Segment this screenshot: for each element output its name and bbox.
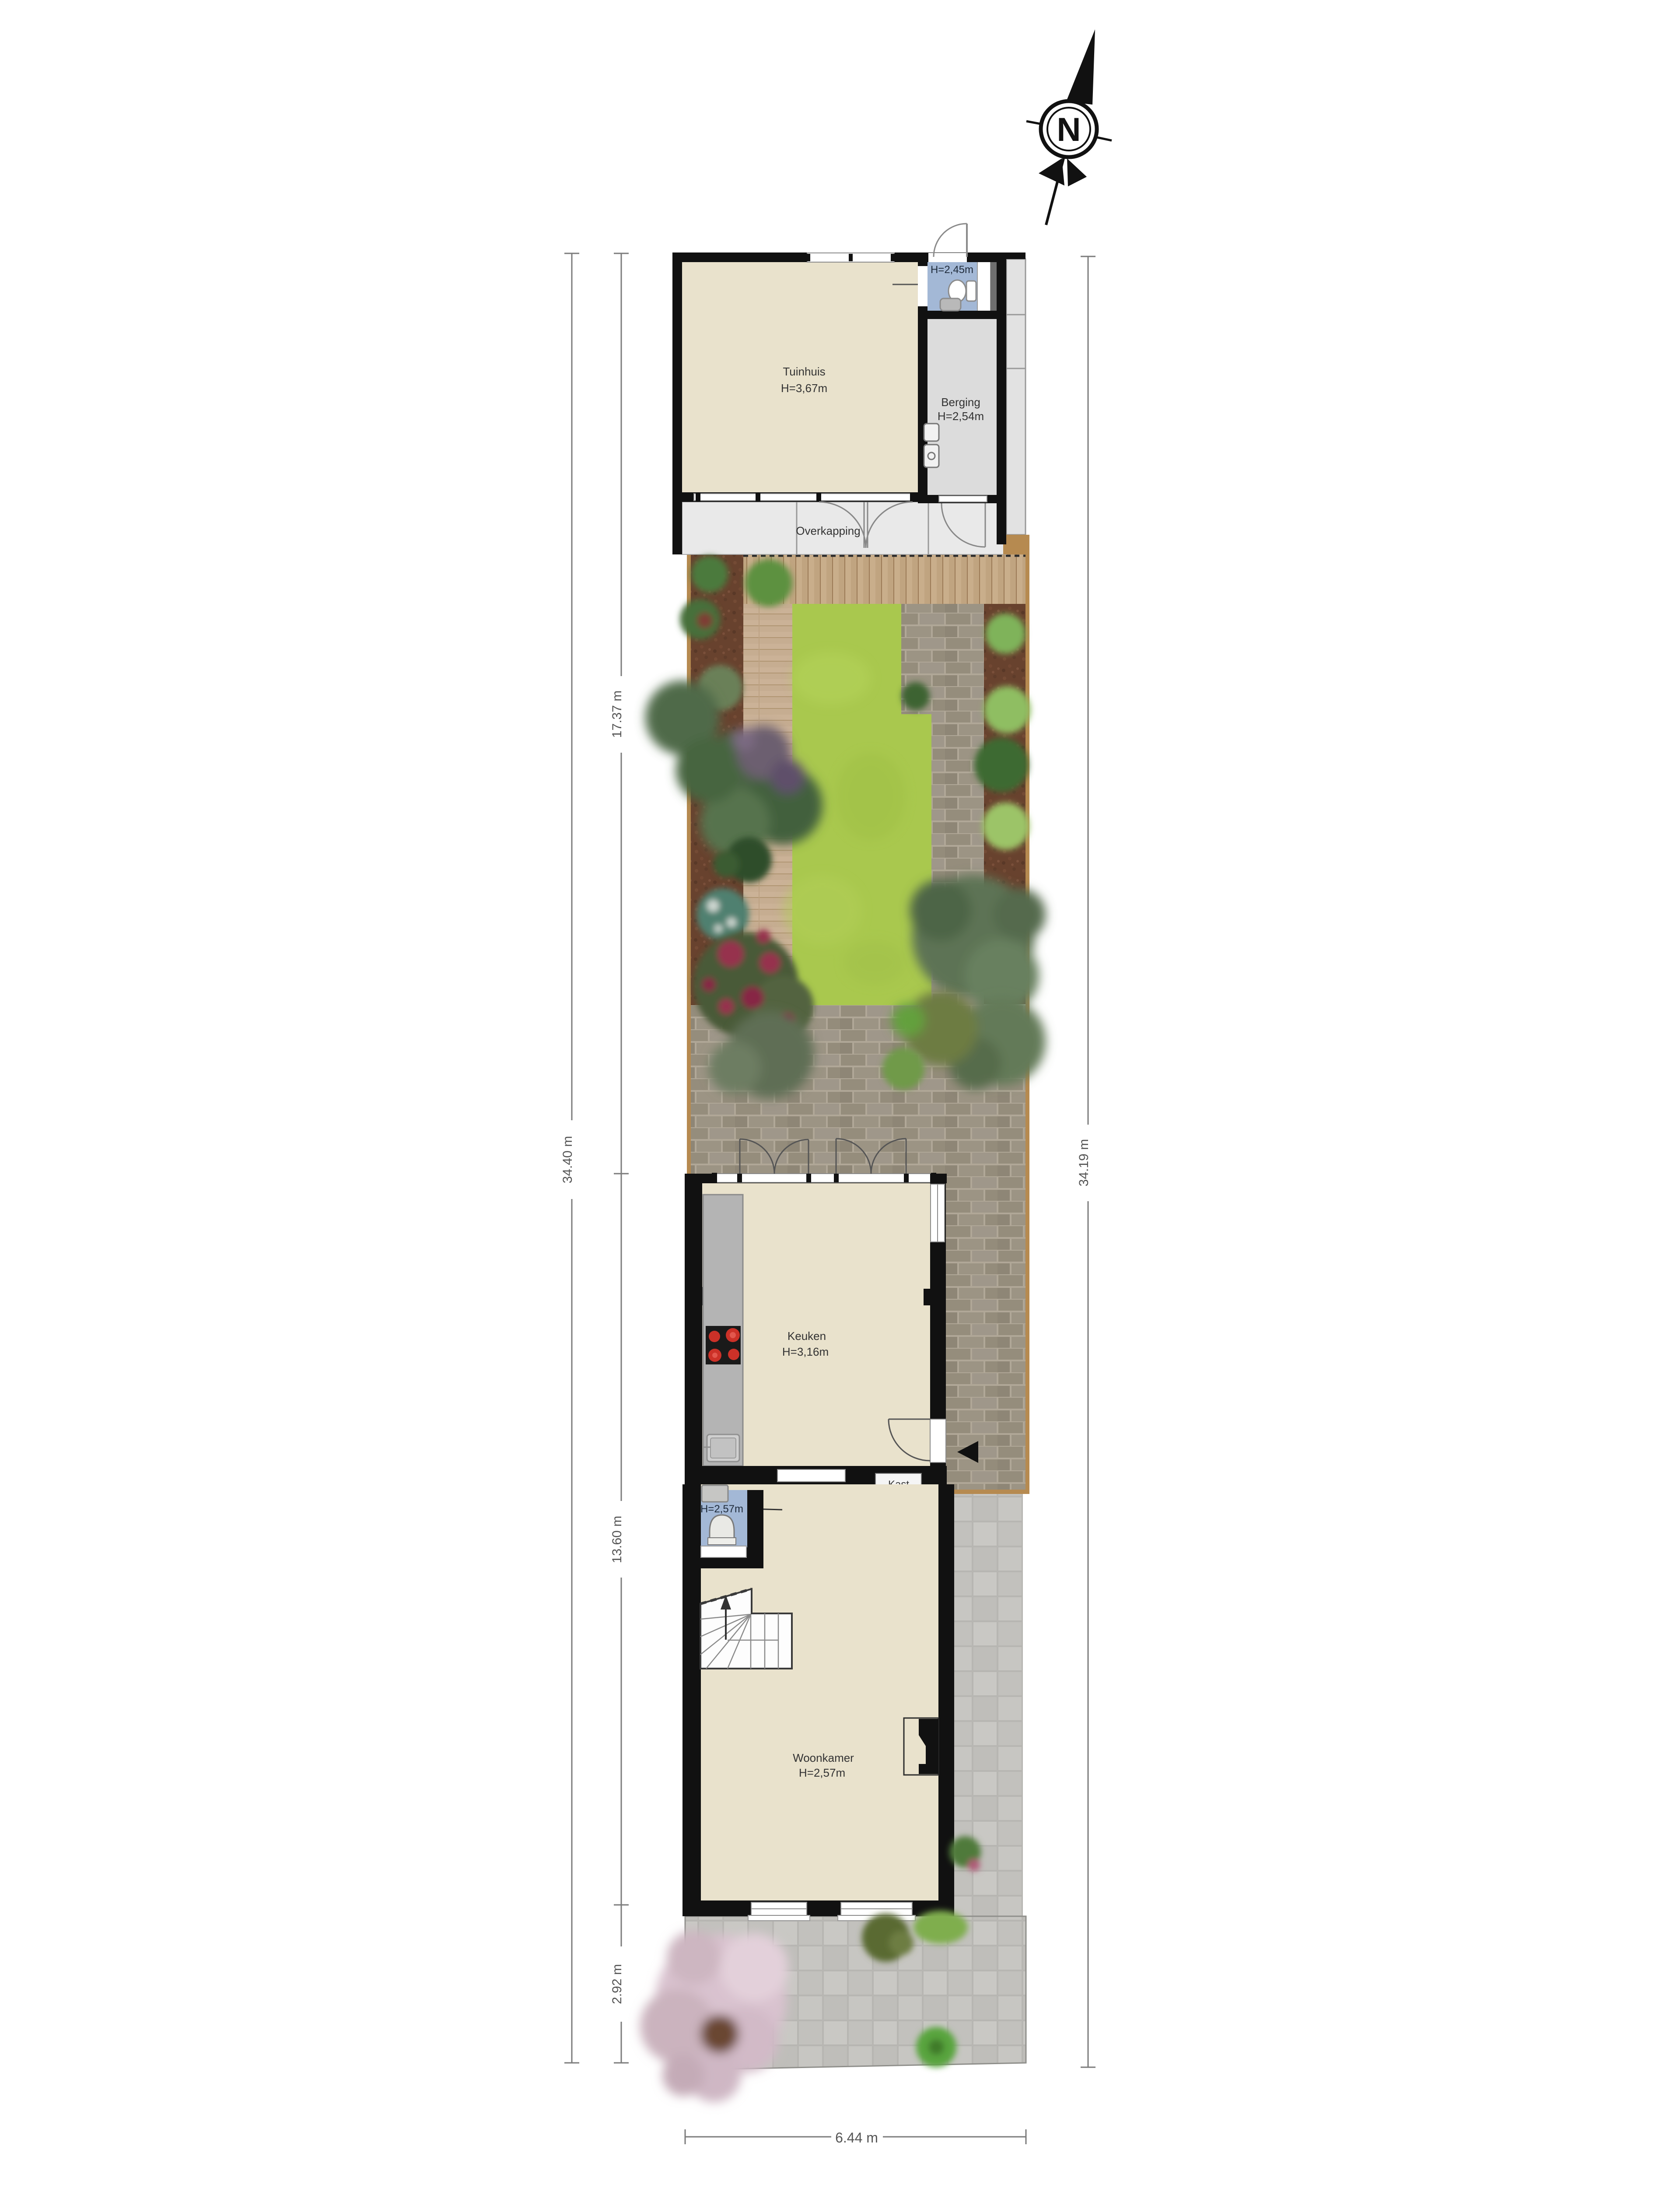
svg-text:Berging: Berging <box>941 396 980 409</box>
svg-text:Woonkamer: Woonkamer <box>793 1751 854 1764</box>
svg-text:H=2,57m: H=2,57m <box>799 1766 845 1779</box>
svg-text:34.19 m: 34.19 m <box>1077 1139 1091 1186</box>
svg-text:H=2,54m: H=2,54m <box>938 410 984 423</box>
svg-text:13.60 m: 13.60 m <box>610 1516 624 1563</box>
svg-text:Tuinhuis: Tuinhuis <box>783 365 825 378</box>
svg-text:Overkapping: Overkapping <box>796 524 860 537</box>
svg-text:6.44 m: 6.44 m <box>835 2130 878 2146</box>
svg-text:2.92 m: 2.92 m <box>610 1964 624 2004</box>
svg-text:34.40 m: 34.40 m <box>560 1136 575 1183</box>
svg-text:H=3,67m: H=3,67m <box>781 382 827 395</box>
svg-text:H=2,57m: H=2,57m <box>700 1503 743 1515</box>
svg-text:N: N <box>1057 111 1081 148</box>
svg-text:H=3,16m: H=3,16m <box>782 1345 829 1358</box>
svg-text:17.37 m: 17.37 m <box>610 691 624 738</box>
svg-text:Keuken: Keuken <box>787 1329 826 1343</box>
svg-text:H=2,45m: H=2,45m <box>931 264 973 276</box>
